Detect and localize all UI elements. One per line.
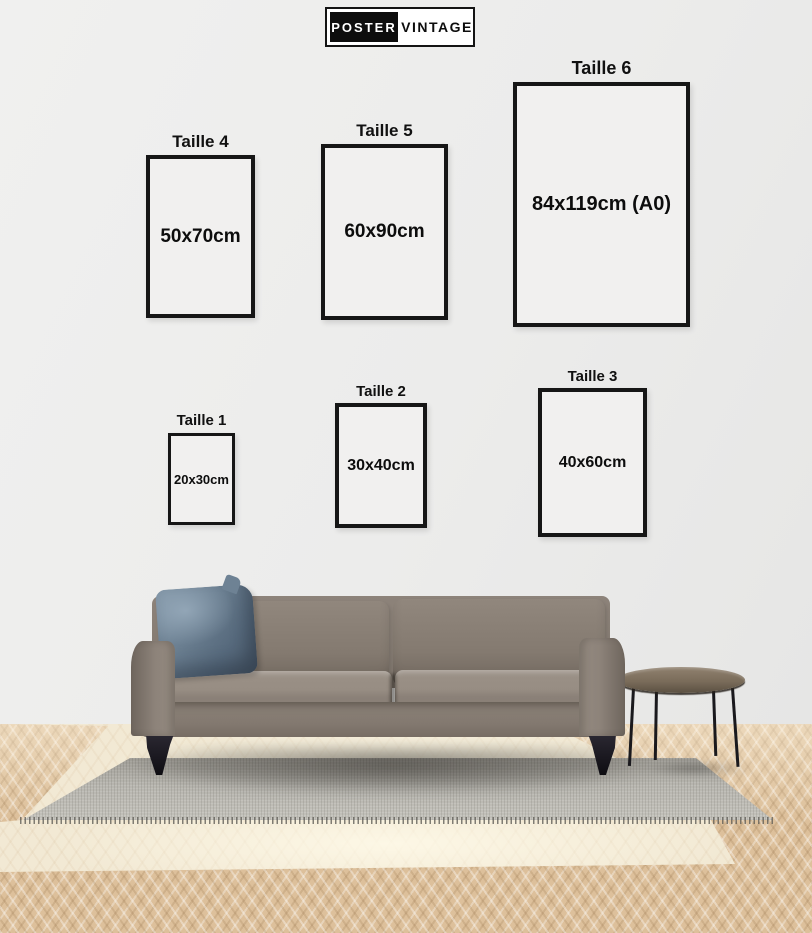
frame-size-label-taille-4: 50x70cm [160,226,240,248]
frame-title-taille-5: Taille 5 [356,121,412,141]
frame-title-taille-1: Taille 1 [177,412,227,429]
sofa-base [139,702,621,737]
frame-title-taille-3: Taille 3 [568,368,618,385]
poster-size-guide-scene: POSTER VINTAGE Taille 4 50x70cm Taille 5… [0,0,812,933]
size-frame-taille-3: Taille 3 40x60cm [538,388,647,537]
side-table-top [617,667,745,693]
rug-fringe [20,817,774,824]
size-frame-taille-4: Taille 4 50x70cm [146,155,255,318]
sofa-armrest-left [131,641,175,736]
frame-size-label-taille-1: 20x30cm [174,472,229,487]
frame-size-label-taille-2: 30x40cm [347,457,415,475]
sofa-armrest-right [579,638,625,736]
frame-title-taille-2: Taille 2 [356,383,406,400]
frame-size-label-taille-3: 40x60cm [559,454,627,472]
frame-size-label-taille-6: 84x119cm (A0) [532,193,671,216]
table-floor-shadow [638,762,750,775]
frame-size-label-taille-5: 60x90cm [344,221,424,243]
brand-logo-vintage-text: VINTAGE [401,9,473,45]
frame-title-taille-4: Taille 4 [172,132,228,152]
size-frame-taille-2: Taille 2 30x40cm [335,403,427,528]
sofa-floor-shadow [135,747,650,793]
size-frame-taille-5: Taille 5 60x90cm [321,144,448,320]
frame-title-taille-6: Taille 6 [572,58,632,79]
brand-logo: POSTER VINTAGE [325,7,475,47]
brand-logo-poster-text: POSTER [330,12,398,42]
size-frame-taille-1: Taille 1 20x30cm [168,433,235,525]
size-frame-taille-6: Taille 6 84x119cm (A0) [513,82,690,327]
